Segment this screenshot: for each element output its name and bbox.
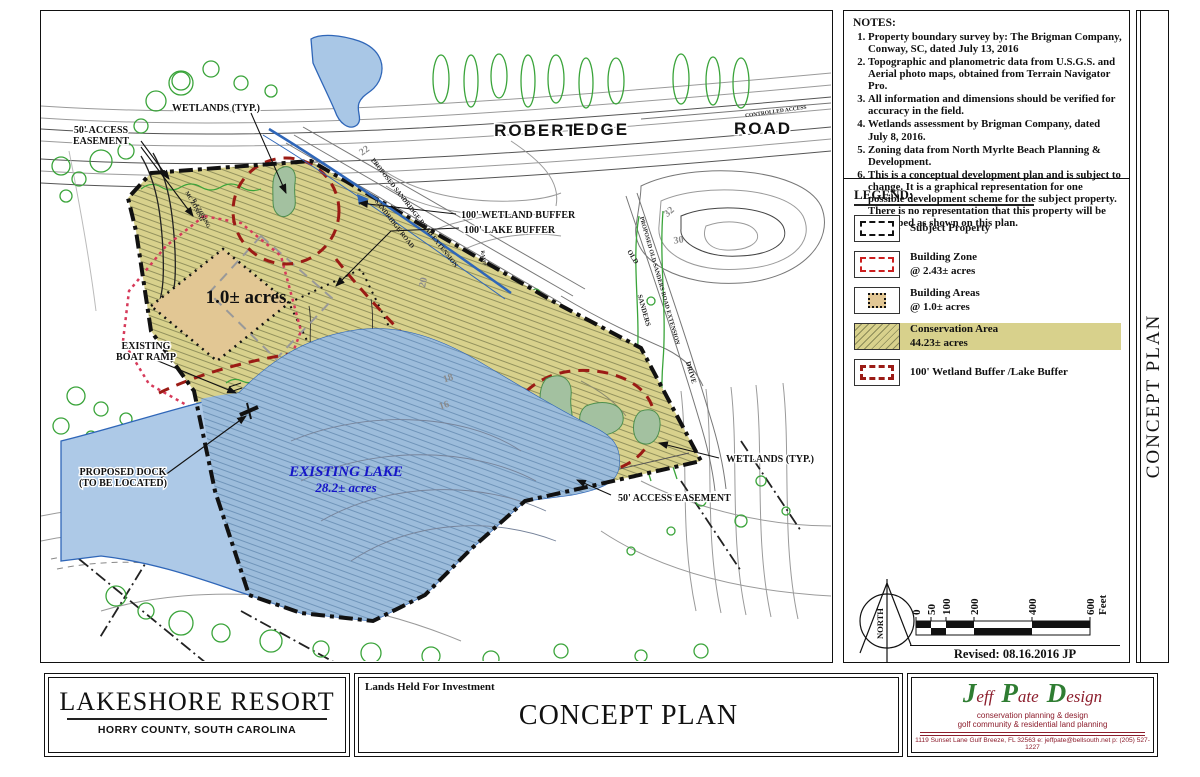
- map-label-contour-32: 32: [662, 205, 677, 220]
- scale-tick-label: 200: [969, 598, 981, 615]
- legend-swatch-wetland-lake-buffer: [854, 359, 900, 386]
- legend-label-conservation-area: Conservation Area44.23± acres: [910, 323, 998, 349]
- legend-title: LEGEND:: [854, 187, 1034, 206]
- map-label-lake-acreage: 28.2± acres: [314, 480, 376, 495]
- firm-name: JeffPateDesign: [912, 680, 1153, 707]
- sheet-title-box-inner: Lands Held For Investment CONCEPT PLAN: [358, 677, 899, 753]
- map-label-contour-30: 30: [673, 234, 684, 246]
- firm-name-initial: P: [1001, 678, 1018, 708]
- scale-tick-label: 400: [1027, 598, 1039, 615]
- firm-name-initial: J: [963, 678, 977, 708]
- map-label-old: OLD: [625, 248, 640, 265]
- legend-item-conservation-area: Conservation Area44.23± acres: [854, 323, 1121, 350]
- map-label-road-road: ROAD: [734, 119, 792, 138]
- north-label: NORTH: [875, 608, 885, 639]
- note-item-5: Zoning data from North Myrlte Beach Plan…: [868, 144, 1122, 168]
- legend-swatch-style: [860, 221, 894, 236]
- map-label-wetlands-typ-right: WETLANDS (TYP.): [726, 454, 814, 465]
- notes-divider: [844, 178, 1129, 179]
- sheet-title-strip: CONCEPT PLAN: [1136, 10, 1169, 663]
- notes-title: NOTES:: [853, 17, 1122, 30]
- scale-unit-label: Feet: [1097, 595, 1109, 615]
- map-label-road-robert: ROBERT: [494, 121, 578, 140]
- project-title-box: LAKESHORE RESORT HORRY COUNTY, SOUTH CAR…: [44, 673, 350, 757]
- legend-item-subject-property: Subject Property: [854, 215, 1121, 242]
- project-name: LAKESHORE RESORT: [49, 687, 345, 717]
- notes-legend-panel: NOTES: Property boundary survey by: The …: [843, 10, 1130, 663]
- legend-label-subject-property: Subject Property: [910, 222, 990, 235]
- note-item-3: All information and dimensions should be…: [868, 93, 1122, 117]
- legend-block: LEGEND: Subject PropertyBuilding Zone@ 2…: [854, 187, 1121, 395]
- legend-label-building-zone: Building Zone@ 2.43± acres: [910, 251, 977, 277]
- note-item-1: Property boundary survey by: The Brigman…: [868, 31, 1122, 55]
- legend-label-building-areas: Building Areas@ 1.0± acres: [910, 287, 980, 313]
- scale-segment: [931, 628, 946, 635]
- map-label-wetland-buffer-label: 100' WETLAND BUFFER: [461, 210, 576, 221]
- legend-swatch-building-zone: [854, 251, 900, 278]
- sheet-title-box: Lands Held For Investment CONCEPT PLAN: [354, 673, 903, 757]
- firm-name-word: Design: [1047, 689, 1102, 706]
- sheet-title: CONCEPT PLAN: [359, 700, 898, 732]
- scale-tick-label: 50: [926, 604, 938, 616]
- note-item-4: Wetlands assessment by Brigman Company, …: [868, 118, 1122, 142]
- firm-tagline-2: golf community & residential land planni…: [912, 721, 1153, 730]
- note-item-2: Topographic and planometric data from U.…: [868, 56, 1122, 92]
- map-label-road-edge: EDGE: [573, 120, 629, 139]
- legend-rows: Subject PropertyBuilding Zone@ 2.43± acr…: [854, 215, 1121, 386]
- legend-item-building-areas: Building Areas@ 1.0± acres: [854, 287, 1121, 314]
- firm-name-word: Jeff: [963, 689, 994, 706]
- revision-note: Revised: 08.16.2016 JP: [910, 645, 1120, 662]
- sheet-side-title: CONCEPT PLAN: [1143, 314, 1165, 479]
- firm-name-rest: eff: [976, 687, 993, 706]
- scale-segment: [916, 621, 931, 628]
- legend-label-wetland-lake-buffer: 100' Wetland Buffer /Lake Buffer: [910, 366, 1068, 379]
- scale-tick-label: 0: [911, 609, 923, 615]
- scale-tick-label: 600: [1085, 598, 1097, 615]
- map-label-access-easement-left-2: EASEMENT: [73, 136, 129, 147]
- scale-bar: 050100200400600Feet: [906, 587, 1126, 647]
- firm-name-initial: D: [1047, 678, 1067, 708]
- scale-segment: [1032, 621, 1090, 628]
- legend-swatch-subject-property: [854, 215, 900, 242]
- legend-swatch-style: [860, 365, 894, 380]
- map-label-access-easement-left-1: 50' ACCESS: [74, 125, 129, 136]
- map-frame: WETLANDS (TYP.)50' ACCESSEASEMENT100' WE…: [40, 10, 833, 663]
- strip-inner-line: [1140, 11, 1141, 662]
- firm-logo-box: JeffPateDesign conservation planning & d…: [907, 673, 1158, 757]
- legend-swatch-building-areas: [854, 287, 900, 314]
- scale-segment: [974, 628, 1032, 635]
- ownership-note: Lands Held For Investment: [365, 681, 495, 693]
- firm-logo-box-inner: JeffPateDesign conservation planning & d…: [911, 677, 1154, 753]
- map-label-boat-ramp-1: EXISTING: [122, 341, 171, 352]
- map-label-lake-buffer-label: 100' LAKE BUFFER: [464, 225, 556, 236]
- firm-address: 1119 Sunset Lane Gulf Breeze, FL 32563 e…: [912, 737, 1153, 751]
- map-label-wetlands-typ-left: WETLANDS (TYP.): [172, 103, 260, 114]
- map-label-drive: DRIVE: [684, 361, 698, 385]
- map-label-contour-22: 22: [357, 144, 372, 159]
- legend-item-wetland-lake-buffer: 100' Wetland Buffer /Lake Buffer: [854, 359, 1121, 386]
- firm-name-rest: esign: [1066, 687, 1102, 706]
- map-label-building-area-acreage: 1.0± acres: [206, 287, 287, 308]
- plan-sheet: WETLANDS (TYP.)50' ACCESSEASEMENT100' WE…: [0, 0, 1200, 777]
- firm-rule: [920, 732, 1145, 736]
- scale-segment: [946, 621, 974, 628]
- legend-swatch-style: [860, 257, 894, 272]
- map-label-dock-1: PROPOSED DOCK: [80, 467, 167, 478]
- project-title-box-inner: LAKESHORE RESORT HORRY COUNTY, SOUTH CAR…: [48, 677, 346, 753]
- site-map: WETLANDS (TYP.)50' ACCESSEASEMENT100' WE…: [41, 11, 831, 661]
- map-label-lake-name: EXISTING LAKE: [288, 464, 403, 480]
- map-label-boat-ramp-2: BOAT RAMP: [116, 352, 176, 363]
- project-location: HORRY COUNTY, SOUTH CAROLINA: [49, 724, 345, 736]
- firm-name-rest: ate: [1018, 687, 1039, 706]
- legend-swatch-style: [868, 293, 886, 308]
- map-label-dock-2: (TO BE LOCATED): [79, 478, 167, 489]
- map-label-access-easement-right: 50' ACCESS EASEMENT: [618, 493, 731, 504]
- title-rule: [67, 718, 327, 720]
- legend-swatch-conservation-area: [854, 323, 900, 350]
- scale-tick-label: 100: [941, 598, 953, 615]
- legend-swatch-style: [855, 324, 899, 349]
- legend-item-building-zone: Building Zone@ 2.43± acres: [854, 251, 1121, 278]
- firm-name-word: Pate: [1001, 689, 1038, 706]
